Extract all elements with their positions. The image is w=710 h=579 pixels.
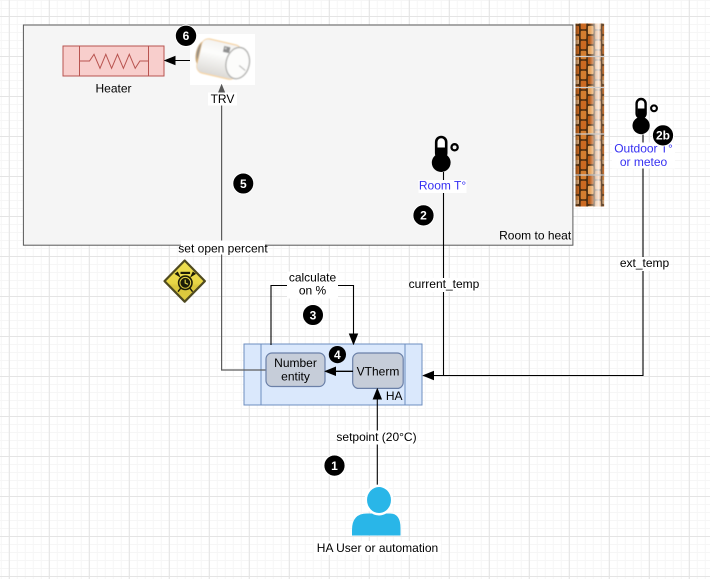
svg-text:5: 5: [240, 177, 247, 191]
svg-text:Room T°: Room T°: [419, 179, 466, 193]
svg-text:current_temp: current_temp: [409, 277, 480, 291]
svg-text:HA: HA: [386, 389, 403, 403]
svg-text:2: 2: [420, 209, 427, 223]
svg-text:HA User or automation: HA User or automation: [317, 541, 438, 555]
svg-text:set open percent: set open percent: [178, 242, 268, 256]
svg-text:Heater: Heater: [95, 82, 131, 96]
svg-text:3: 3: [310, 308, 317, 322]
svg-text:entity: entity: [281, 370, 310, 384]
svg-text:4: 4: [334, 348, 341, 362]
svg-text:TRV: TRV: [211, 92, 235, 106]
svg-text:6: 6: [183, 29, 190, 43]
svg-text:Room to heat: Room to heat: [499, 229, 572, 243]
svg-text:on %: on %: [299, 284, 327, 298]
svg-text:2b: 2b: [656, 129, 670, 143]
svg-text:1: 1: [331, 459, 338, 473]
svg-text:setpoint (20°C): setpoint (20°C): [336, 430, 416, 444]
svg-text:ext_temp: ext_temp: [620, 256, 670, 270]
svg-text:VTherm: VTherm: [357, 365, 400, 379]
svg-text:or meteo: or meteo: [620, 155, 668, 169]
svg-text:calculate: calculate: [289, 271, 337, 285]
svg-text:Number: Number: [274, 356, 317, 370]
